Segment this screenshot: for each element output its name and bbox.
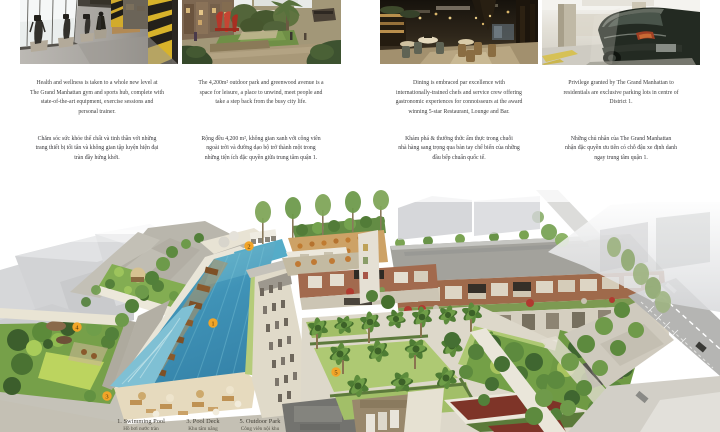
svg-text:2: 2 bbox=[247, 244, 250, 251]
svg-text:1: 1 bbox=[211, 321, 214, 328]
svg-text:Khu tắm nắng: Khu tắm nắng bbox=[188, 425, 218, 432]
svg-text:5. Outdoor Park: 5. Outdoor Park bbox=[239, 418, 281, 425]
svg-text:1. Swimming Pool: 1. Swimming Pool bbox=[117, 418, 165, 425]
svg-text:Hồ bơi nước tràn: Hồ bơi nước tràn bbox=[123, 425, 159, 432]
svg-text:3: 3 bbox=[105, 394, 108, 401]
svg-text:3. Pool Deck: 3. Pool Deck bbox=[186, 418, 220, 425]
svg-text:5: 5 bbox=[334, 370, 337, 377]
svg-text:Công viên nội khu: Công viên nội khu bbox=[241, 426, 280, 432]
